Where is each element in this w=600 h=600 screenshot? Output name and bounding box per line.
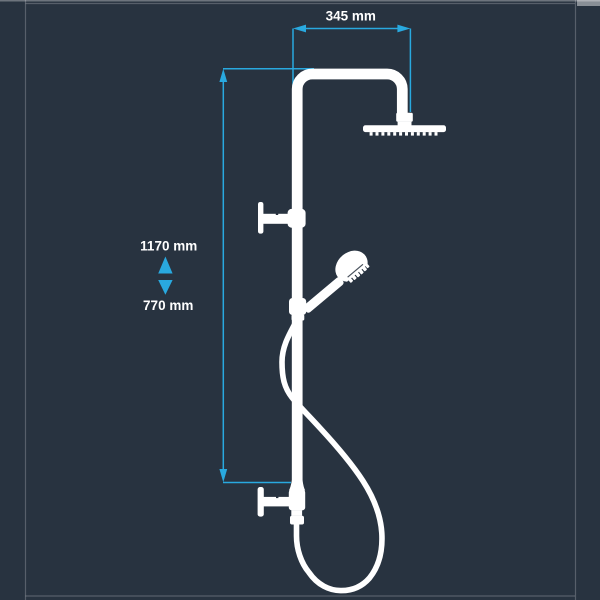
svg-text:1170 mm: 1170 mm [140,239,197,254]
svg-text:345 mm: 345 mm [326,8,376,23]
svg-text:770 mm: 770 mm [143,298,193,313]
